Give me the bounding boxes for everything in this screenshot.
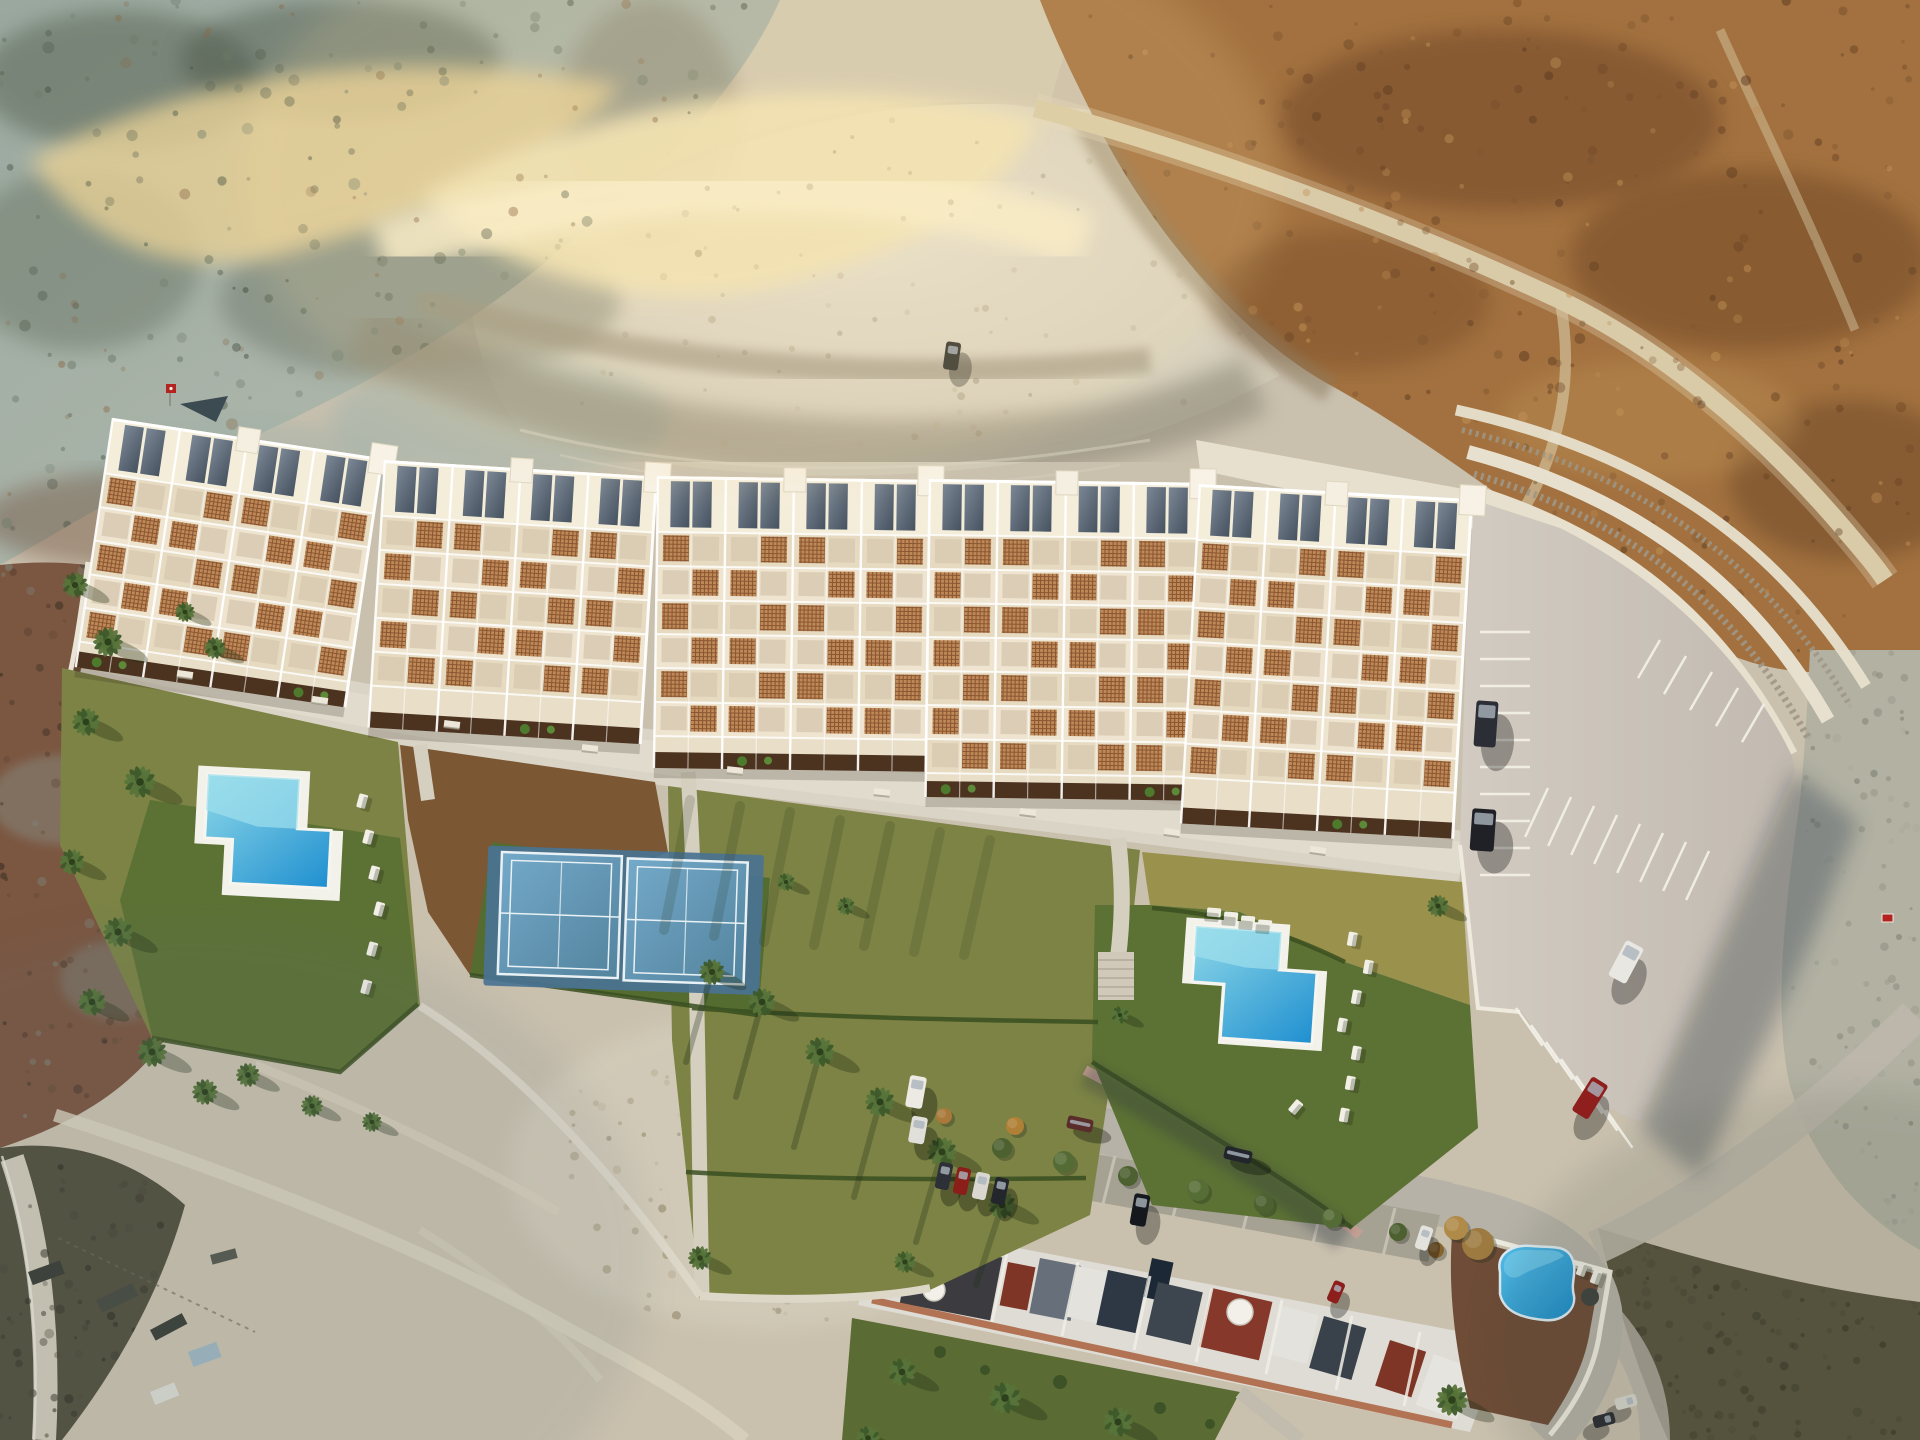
terrace-awning	[796, 708, 822, 732]
terrace-awning	[798, 572, 824, 596]
terrace-awning	[583, 635, 610, 661]
speckle	[1854, 778, 1860, 784]
terrace-awning	[933, 675, 959, 699]
pergola-grid	[1229, 579, 1256, 606]
speckle	[55, 601, 63, 609]
pergola-grid	[661, 671, 687, 697]
pergola-grid	[1100, 608, 1126, 634]
speckle	[1658, 499, 1665, 506]
terrace-awning	[662, 570, 688, 594]
roof-window	[874, 484, 894, 530]
pergola-grid	[663, 535, 689, 561]
speckle	[1656, 547, 1664, 555]
speckle	[1795, 609, 1800, 614]
speckle	[1343, 39, 1353, 49]
speckle	[1843, 614, 1847, 618]
speckle	[1895, 478, 1903, 486]
speckle	[1874, 708, 1883, 717]
pergola-grid	[1068, 710, 1094, 736]
speckle	[34, 893, 40, 899]
speckle	[1836, 405, 1844, 413]
stair-core	[1459, 485, 1487, 516]
terrace-awning	[619, 535, 646, 561]
speckle	[12, 395, 19, 402]
bush	[1053, 1375, 1067, 1389]
pergola-grid	[1357, 722, 1384, 749]
terrace-awning	[1356, 757, 1383, 782]
speckle	[1356, 147, 1364, 155]
terrace-awning	[1068, 745, 1094, 769]
speckle	[1574, 333, 1585, 344]
speckle	[1548, 390, 1552, 394]
speckle	[784, 1312, 788, 1316]
roof-window	[828, 483, 848, 529]
pergola-grid	[1435, 556, 1462, 583]
speckle	[1626, 93, 1634, 101]
speckle	[37, 877, 46, 886]
pergola-grid	[1427, 692, 1454, 719]
speckle	[1627, 21, 1635, 29]
pergola-grid	[1337, 551, 1364, 578]
speckle	[1299, 323, 1307, 331]
speckle	[1383, 85, 1393, 95]
pergola-grid	[293, 608, 323, 638]
pergola-grid	[543, 665, 571, 693]
speckle	[1469, 263, 1479, 273]
pergola-grid	[1395, 724, 1422, 751]
speckle	[1352, 391, 1358, 397]
speckle	[1832, 154, 1840, 162]
pergola-grid	[1361, 654, 1388, 681]
pergola-grid	[384, 553, 412, 581]
speckle	[1847, 703, 1852, 708]
terrace-awning	[1070, 609, 1096, 633]
terrace-awning	[932, 743, 958, 767]
speckle	[26, 587, 35, 596]
speckle	[9, 700, 14, 705]
speckle	[7, 164, 14, 171]
terrace-awning	[1258, 752, 1285, 777]
pergola-grid	[962, 742, 988, 768]
speckle	[296, 390, 303, 397]
pergola-grid	[1190, 747, 1217, 774]
speckle	[1607, 321, 1611, 325]
speckle	[1908, 1059, 1915, 1066]
speckle	[1429, 292, 1434, 297]
terrace-awning	[758, 707, 784, 731]
speckle	[1708, 79, 1717, 88]
terrace-awning	[865, 675, 891, 699]
speckle	[1840, 338, 1849, 347]
terrace-awning	[964, 573, 990, 597]
terrace-awning	[1199, 578, 1226, 603]
terrace-awning	[1069, 677, 1095, 701]
speckle	[1850, 45, 1858, 53]
speckle	[105, 197, 114, 206]
speckle	[648, 1198, 653, 1203]
terrace-awning	[1071, 541, 1097, 565]
speckle	[1303, 189, 1311, 197]
speckle	[71, 300, 78, 307]
padel-court-1	[498, 852, 622, 978]
speckle	[1305, 316, 1312, 323]
speckle	[659, 1188, 662, 1191]
speckle	[1426, 42, 1430, 46]
speckle	[1306, 338, 1310, 342]
terrace-awning	[1328, 722, 1355, 747]
speckle	[1536, 45, 1541, 50]
pergola-grid	[231, 565, 261, 595]
terrace-awning	[1425, 727, 1452, 752]
speckle	[1893, 983, 1900, 990]
pergola-grid	[864, 708, 890, 734]
pergola-grid	[1137, 677, 1163, 703]
speckle	[1522, 47, 1526, 51]
speckle	[1649, 356, 1657, 364]
speckle	[1903, 822, 1910, 829]
pergola-grid	[477, 627, 505, 655]
pergola-grid	[255, 603, 285, 633]
speckle	[1886, 97, 1894, 105]
speckle	[1884, 192, 1892, 200]
speckle	[1860, 792, 1868, 800]
speckle	[1781, 103, 1785, 107]
speckle	[1355, 352, 1359, 356]
speckle	[1445, 134, 1454, 143]
terrace-awning	[1196, 646, 1223, 671]
speckle	[1876, 997, 1881, 1002]
speckle	[642, 1132, 647, 1137]
apartment-block	[924, 465, 1216, 811]
speckle	[1912, 937, 1917, 942]
speckle	[1587, 156, 1595, 164]
speckle	[5, 563, 13, 571]
speckle	[1908, 267, 1916, 275]
pergola-grid	[131, 515, 161, 545]
speckle	[1550, 57, 1561, 68]
roof-window	[1300, 495, 1322, 542]
speckle	[664, 1080, 670, 1086]
pergola-grid	[1136, 745, 1162, 771]
speckle	[61, 447, 65, 451]
pergola-grid	[106, 477, 136, 507]
speckle	[1848, 766, 1853, 771]
speckle	[1845, 1046, 1848, 1049]
pergola-grid	[407, 657, 435, 685]
terrace-awning	[731, 537, 757, 561]
speckle	[36, 215, 40, 219]
speckle	[1905, 76, 1912, 83]
speckle	[1733, 314, 1742, 323]
speckle	[1453, 28, 1461, 36]
speckle	[34, 90, 42, 98]
terrace-awning	[867, 539, 893, 563]
speckle	[1557, 249, 1565, 257]
pergola-grid	[412, 589, 440, 617]
garden-path	[420, 745, 428, 800]
terrace-awning	[1031, 676, 1057, 700]
speckle	[177, 333, 187, 343]
speckle	[1726, 167, 1737, 178]
roof-window	[553, 475, 575, 522]
terrace-awning	[1032, 608, 1058, 632]
speckle	[1483, 388, 1489, 394]
speckle	[1693, 150, 1698, 155]
speckle	[1278, 121, 1285, 128]
speckle	[1831, 958, 1839, 966]
speckle	[1273, 31, 1283, 41]
pergola-grid	[169, 521, 199, 551]
terrace-awning	[1220, 750, 1247, 775]
speckle	[1571, 364, 1575, 368]
pergola-grid	[1399, 656, 1426, 683]
speckle	[1719, 97, 1727, 105]
terrace-awning	[480, 594, 507, 620]
speckle	[1429, 252, 1439, 262]
pergola-grid	[547, 597, 575, 625]
speckle	[1397, 219, 1404, 226]
pergola-grid	[826, 707, 852, 733]
speckle	[1872, 1019, 1881, 1028]
terrace-awning	[1227, 614, 1254, 639]
speckle	[1871, 492, 1882, 503]
pergola-grid	[1030, 709, 1056, 735]
roof-window	[1032, 485, 1052, 531]
speckle	[1312, 330, 1316, 334]
speckle	[205, 81, 215, 91]
terrace-awning	[1433, 591, 1460, 616]
speckle	[1895, 501, 1899, 505]
pergola-grid	[865, 640, 891, 666]
speckle	[70, 13, 75, 18]
terrace-awning	[517, 596, 544, 622]
speckle	[1759, 210, 1764, 215]
speckle	[1491, 100, 1501, 110]
pergola-grid	[613, 635, 641, 663]
speckle	[1384, 202, 1392, 210]
terrace-awning	[261, 570, 290, 598]
speckle	[1380, 124, 1386, 130]
speckle	[1544, 15, 1551, 22]
pergola-grid	[1032, 573, 1058, 599]
speckle	[93, 128, 102, 137]
speckle	[1284, 332, 1294, 342]
speckle	[1359, 207, 1364, 212]
speckle	[1841, 53, 1844, 56]
pergola-grid	[866, 572, 892, 598]
speckle	[1744, 265, 1752, 273]
speckle	[42, 728, 50, 736]
speckle	[29, 266, 38, 275]
speckle	[255, 49, 266, 60]
speckle	[1294, 303, 1303, 312]
speckle	[0, 71, 4, 75]
apartment-block	[1179, 470, 1486, 849]
terrace-awning	[611, 670, 638, 696]
pergola-grid	[1263, 649, 1290, 676]
speckle	[68, 413, 72, 417]
speckle	[1581, 106, 1588, 113]
speckle	[1881, 864, 1886, 869]
speckle	[1700, 589, 1706, 595]
roof-window	[485, 471, 507, 518]
pergola-grid	[96, 544, 126, 574]
speckle	[1607, 81, 1614, 88]
speckle	[2, 38, 7, 43]
speckle	[668, 1270, 676, 1278]
speckle	[1479, 289, 1489, 299]
speckle	[32, 821, 38, 827]
speckle	[1835, 528, 1843, 536]
speckle	[1888, 975, 1896, 983]
roof-window	[738, 482, 758, 528]
speckle	[47, 479, 58, 490]
terrace-awning	[271, 503, 300, 531]
pergola-grid	[1423, 760, 1450, 787]
stair-core	[510, 458, 533, 483]
terrace-awning	[174, 488, 203, 516]
bush	[980, 1365, 990, 1375]
pergola-grid	[1069, 642, 1095, 668]
terrace-awning	[962, 709, 988, 733]
speckle	[1533, 397, 1538, 402]
speckle	[1876, 672, 1883, 679]
speckle	[1833, 384, 1840, 391]
speckle	[86, 181, 92, 187]
speckle	[291, 12, 295, 16]
pergola-grid	[515, 629, 543, 657]
speckle	[1650, 128, 1656, 134]
terrace-awning	[1367, 554, 1394, 579]
roof-window	[620, 480, 642, 527]
speckle	[1804, 419, 1811, 426]
pergola-grid	[797, 673, 823, 699]
speckle	[1879, 883, 1886, 890]
speckle	[1850, 354, 1853, 357]
terrace-awning	[545, 632, 572, 658]
speckle	[1817, 1065, 1822, 1070]
speckle	[1809, 1058, 1816, 1065]
speckle	[1862, 718, 1869, 725]
pergola-grid	[799, 537, 825, 563]
pergola-grid	[963, 674, 989, 700]
terrace-awning	[615, 602, 642, 628]
garden-path-east	[1118, 838, 1122, 958]
speckle	[19, 320, 31, 332]
speckle	[1814, 961, 1819, 966]
speckle	[1422, 227, 1430, 235]
speckle	[136, 176, 143, 183]
speckle	[1401, 109, 1411, 119]
speckle	[243, 287, 249, 293]
pergola-grid	[1431, 624, 1458, 651]
speckle	[1303, 74, 1313, 84]
speckle	[204, 255, 213, 264]
speckle	[233, 287, 236, 290]
pergola-grid	[241, 497, 271, 527]
garden-stairs	[1098, 952, 1134, 1000]
speckle	[4, 877, 8, 881]
speckle	[1555, 199, 1563, 207]
red-sign-east	[1882, 914, 1893, 922]
roof-window	[1278, 494, 1300, 541]
pergola-grid	[798, 605, 824, 631]
terrace-awning	[1000, 710, 1026, 734]
speckle	[177, 356, 183, 362]
pergola-grid	[1260, 717, 1287, 744]
pergola-grid	[897, 538, 923, 564]
terrace-awning	[1098, 711, 1124, 735]
speckle	[1863, 981, 1869, 987]
bench	[582, 744, 599, 754]
terrace-awning	[1335, 586, 1362, 611]
terrace-awning	[226, 599, 255, 627]
speckle	[24, 628, 33, 637]
speckle	[618, 1121, 622, 1125]
terrace-awning	[1002, 574, 1028, 598]
pergola-grid	[895, 674, 921, 700]
terrace-awning	[1100, 575, 1126, 599]
terrace-awning	[587, 567, 614, 593]
speckle	[1880, 942, 1889, 951]
speckle	[1906, 541, 1911, 546]
speckle	[1839, 6, 1848, 15]
terrace-awning	[298, 576, 327, 604]
speckle	[1477, 149, 1484, 156]
speckle	[1634, 174, 1638, 178]
terrace-awning	[693, 536, 719, 560]
roof-window	[1078, 486, 1098, 532]
speckle	[1783, 129, 1793, 139]
speckle	[1417, 125, 1424, 132]
roof-window	[1436, 502, 1458, 549]
speckle	[1579, 321, 1585, 327]
roof-window	[1368, 499, 1390, 546]
speckle	[3, 756, 10, 763]
speckle	[1519, 351, 1530, 362]
pergola-grid	[1194, 679, 1221, 706]
pergola-grid	[1326, 755, 1353, 782]
pergola-grid	[1403, 589, 1430, 616]
speckle	[1, 572, 6, 577]
speckle	[1616, 408, 1624, 416]
speckle	[152, 40, 158, 46]
terrace-awning	[827, 674, 853, 698]
speckle	[1888, 796, 1894, 802]
terrace-awning	[1001, 642, 1027, 666]
roof-window	[598, 478, 620, 525]
speckle	[179, 189, 190, 200]
terrace-awning	[1363, 621, 1390, 646]
speckle	[1180, 399, 1187, 406]
speckle	[1910, 907, 1913, 910]
terrace-awning	[1136, 712, 1162, 736]
pergola-grid	[1139, 541, 1165, 567]
speckle	[45, 30, 52, 37]
speckle	[1741, 75, 1751, 85]
speckle	[677, 1133, 681, 1137]
speckle	[1900, 710, 1904, 714]
pergola-grid	[691, 637, 717, 663]
pergola-grid	[828, 571, 854, 597]
speckle	[1553, 510, 1558, 515]
speckle	[1356, 62, 1365, 71]
speckle	[1391, 192, 1401, 202]
speckle	[42, 42, 54, 54]
pergola-grid	[761, 536, 787, 562]
speckle	[1430, 267, 1435, 272]
pergola-grid	[1226, 647, 1253, 674]
